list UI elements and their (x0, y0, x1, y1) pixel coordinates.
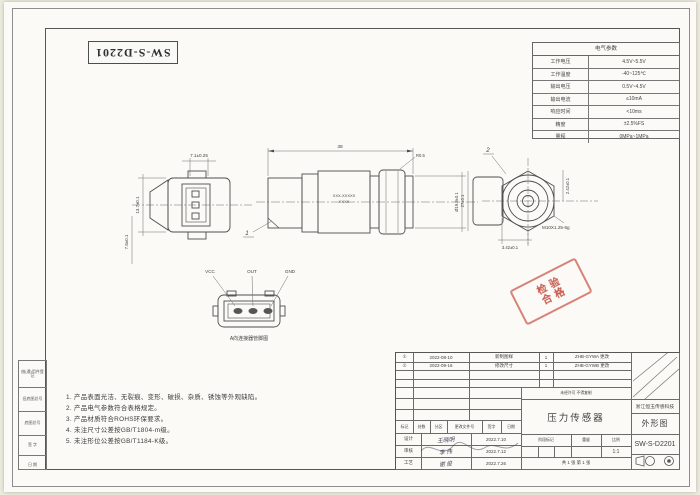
drawing-number: SW-S-D2201 (631, 434, 680, 455)
strip-label: 签 字 (19, 436, 46, 456)
tb-header: 日期 (501, 420, 522, 434)
pin-view-caption: A向连接器管脚图 (230, 335, 268, 342)
strip-label: 借(通)用件登记 (19, 361, 46, 388)
title-block: ① 2022-08-10 新制图样 1 ZHB-GYWA 更改 ② 2022-0… (395, 352, 679, 469)
strip-label: 日 期 (19, 456, 46, 475)
dim-front-radius: R0.5 (416, 153, 426, 158)
note-line: 4. 未注尺寸公差按GB/T1804-m级。 (66, 425, 376, 436)
sign-role: 工艺 (396, 457, 422, 470)
drawing-views: 7.1±0.25 13.7±0.1 7.5±0.1 XXX-XXXXX XXXX (32, 30, 678, 360)
pin-detail-view: VCC OUT GND A向连接器管脚图 (205, 269, 296, 342)
body-marking-line2: XXXX (339, 199, 350, 204)
sign-date: 2022.7.26 (471, 457, 522, 470)
note-line: 1. 产品表面光洁、无裂痕、变形、破损、杂质、锈蚀等外观缺陷。 (66, 392, 376, 403)
doc-type: 外形图 (631, 413, 680, 435)
thread-spec: M10X1.25-6g (542, 225, 570, 230)
tb-header: 分区 (430, 420, 448, 434)
signature: 王晓明 (437, 434, 455, 444)
company-name: 浙江恒玉传感科技 (631, 399, 680, 414)
dim-left-view-height: 13.7±0.1 (135, 196, 140, 214)
dim-front-diameter: Ø19.8±0.1 (454, 192, 459, 212)
hex-view: 2 27±0.1 3.42±0.1 2.42±0.1 M10X1.25-6g (460, 147, 598, 250)
projection-symbols-cell (631, 454, 680, 470)
signature: 谢 俊 (439, 458, 453, 468)
dim-front-width: 38 (337, 144, 343, 150)
strip-label: 底图总号 (19, 412, 46, 436)
dim-left-view-height2: 7.5±0.1 (124, 234, 129, 249)
technical-notes: 1. 产品表面光洁、无裂痕、变形、破损、杂质、锈蚀等外观缺陷。 2. 产品电气参… (66, 392, 376, 447)
tb-header: 更改文件号 (447, 420, 483, 434)
dim-left-view-top: 7.1±0.25 (190, 153, 208, 158)
balloon-1: 1 (245, 230, 248, 237)
pin-label-gnd: GND (285, 269, 296, 274)
scan-blur-layer: SW-S-D2201 电气参数 工作电压4.5V~5.5V 工作温度-40~12… (0, 0, 700, 495)
diagonal-hatch (631, 353, 679, 399)
hatch-cell (631, 353, 680, 400)
tb-header: 标记 (396, 420, 414, 434)
engineering-drawing-sheet: SW-S-D2201 电气参数 工作电压4.5V~5.5V 工作温度-40~12… (0, 0, 700, 495)
tb-header: 签字 (482, 420, 502, 434)
dim-hex-bottom: 3.42±0.1 (502, 245, 519, 250)
note-line: 5. 未注形位公差按GB/T1184-K级。 (66, 436, 376, 447)
body-marking-line1: XXX-XXXXX (333, 193, 356, 198)
projection-symbol-icon (633, 455, 677, 468)
dim-hex-right: 2.42±0.1 (565, 177, 570, 194)
sheet-info: 共 1 张 第 1 张 (521, 457, 632, 470)
tb-header: 处数 (413, 420, 431, 434)
product-name: 压力传感器 (521, 399, 632, 435)
signature: 李 伟 (439, 446, 453, 456)
strip-label: 旧底图总号 (19, 388, 46, 412)
pin-label-out: OUT (247, 269, 257, 274)
left-border-strip: 借(通)用件登记 旧底图总号 底图总号 签 字 日 期 (18, 360, 47, 470)
pin-label-vcc: VCC (205, 269, 215, 274)
dim-hex-left: 27±0.1 (460, 194, 465, 207)
left-view: 7.1±0.25 13.7±0.1 7.5±0.1 (124, 153, 254, 264)
note-line: 3. 产品材质符合ROHS环保要求。 (66, 414, 376, 425)
note-line: 2. 产品电气参数符合表格规定。 (66, 403, 376, 414)
front-view: XXX-XXXXX XXXX 38 R0.5 Ø19.8±0.1 1 (243, 144, 478, 237)
balloon-2: 2 (485, 147, 490, 154)
